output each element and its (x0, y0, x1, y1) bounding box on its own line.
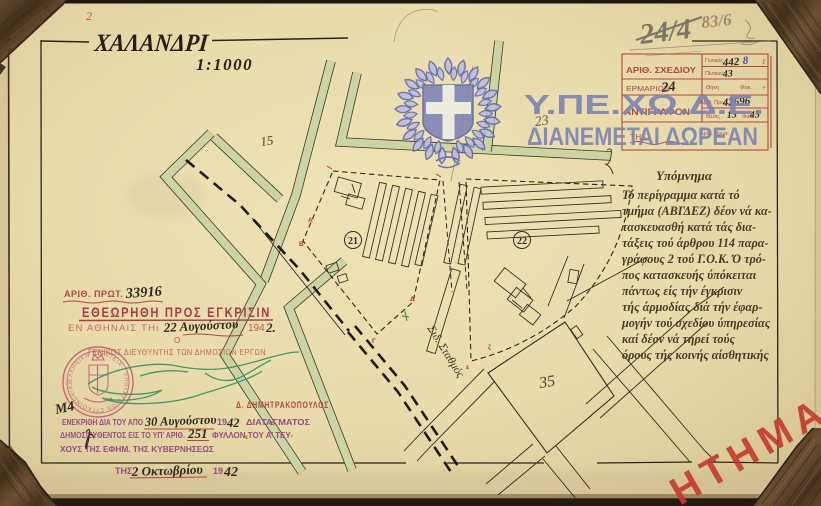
svg-text:ΧΑΛΑΝΔΡΙ: ΧΑΛΑΝΔΡΙ (92, 30, 210, 57)
svg-text:ΕΝ ΑΘΗΝΑΙΣ ΤΗι: ΕΝ ΑΘΗΝΑΙΣ ΤΗι (68, 323, 159, 334)
svg-text:251: 251 (187, 426, 208, 441)
svg-text:πος κατασκευής ύπόκειται: πος κατασκευής ύπόκειται (622, 268, 757, 282)
svg-text:194: 194 (248, 323, 265, 334)
svg-text:τής άρμοδίας διά τήν έφαρ-: τής άρμοδίας διά τήν έφαρ- (622, 300, 763, 314)
svg-text:42: 42 (223, 465, 238, 480)
svg-text:ε: ε (466, 364, 469, 371)
svg-text:πάντως είς τήν έγκρισιν: πάντως είς τήν έγκρισιν (622, 284, 743, 298)
svg-text:1:1000: 1:1000 (196, 55, 253, 74)
svg-text:19: 19 (213, 466, 223, 476)
svg-text:γράφους 2 τού Γ.Ο.Κ. Ό τρό-: γράφους 2 τού Γ.Ο.Κ. Ό τρό- (622, 252, 766, 266)
svg-text:22: 22 (517, 236, 527, 247)
svg-text:33916: 33916 (124, 283, 163, 302)
svg-text:όρους τής κοινής αίσθητικής: όρους τής κοινής αίσθητικής (622, 348, 769, 362)
svg-text:Γ: Γ (372, 338, 376, 345)
svg-text:ΔΙΑΤΑΓΜΑΤΟΣ: ΔΙΑΤΑΓΜΑΤΟΣ (246, 417, 310, 427)
svg-text:442: 442 (721, 56, 740, 69)
svg-text:Δ: Δ (410, 296, 415, 303)
svg-text:Υπόμνημα: Υπόμνημα (656, 168, 713, 183)
svg-text:1: 1 (762, 58, 766, 66)
svg-text:Ο: Ο (174, 336, 180, 345)
svg-text:τασκευασθή κατά τάς δια-: τασκευασθή κατά τάς δια- (622, 220, 756, 234)
svg-text:24/4: 24/4 (637, 13, 693, 51)
svg-text:15: 15 (259, 132, 274, 149)
svg-text:Α: Α (308, 217, 313, 224)
svg-text:ΑΡΙΘ. ΠΡΩΤ.: ΑΡΙΘ. ΠΡΩΤ. (64, 289, 123, 299)
svg-text:Γενικός: Γενικός (705, 57, 723, 64)
svg-text:2.: 2. (265, 320, 276, 335)
svg-text:19: 19 (217, 417, 227, 427)
svg-text:42: 42 (226, 416, 240, 430)
svg-text:21: 21 (348, 236, 358, 247)
svg-text:ΦΥΛΛΟΝ ΤΟΥ Α’ ΤΕΥ-: ΦΥΛΛΟΝ ΤΟΥ Α’ ΤΕΥ- (212, 430, 293, 440)
svg-text:ΤΗΣ: ΤΗΣ (115, 466, 133, 476)
svg-text:Τό περίγραμμα κατά τό: Τό περίγραμμα κατά τό (622, 188, 740, 202)
svg-text:τάξεις τού άρθρου 114 παρα-: τάξεις τού άρθρου 114 παρα- (622, 236, 769, 250)
svg-text:ΔΙΑΝΕΜΕΤΑΙ ΔΩΡΕΑΝ: ΔΙΑΝΕΜΕΤΑΙ ΔΩΡΕΑΝ (527, 123, 758, 151)
svg-text:ΕΝΕΚΡΙΘΗ ΔΙΑ ΤΟΥ ΑΠΟ: ΕΝΕΚΡΙΘΗ ΔΙΑ ΤΟΥ ΑΠΟ (62, 417, 143, 427)
svg-text:ΕΘΕΩΡΗΘΗ ΠΡΟΣ ΕΓΚΡΙΣΙΝ: ΕΘΕΩΡΗΘΗ ΠΡΟΣ ΕΓΚΡΙΣΙΝ (82, 305, 271, 320)
svg-text:μογήν τού σχεδίου ύπηρεσίας: μογήν τού σχεδίου ύπηρεσίας (621, 316, 771, 330)
svg-text:2 Οκτωβρίου: 2 Οκτωβρίου (131, 462, 204, 480)
svg-text:Πίνακες: Πίνακες (705, 71, 724, 77)
svg-text:Δ. ΔΗΜΗΤΡΑΚΟΠΟΥΛΟΣ: Δ. ΔΗΜΗΤΡΑΚΟΠΟΥΛΟΣ (236, 400, 329, 411)
svg-text:ΧΟΥΣ ΤΗΣ ΕΦΗΜ. ΤΗΣ ΚΥΒΕΡΝΗΣΕΩΣ: ΧΟΥΣ ΤΗΣ ΕΦΗΜ. ΤΗΣ ΚΥΒΕΡΝΗΣΕΩΣ (60, 444, 214, 454)
svg-text:Υ.ΠΕ.ΧΩ.Δ.Ε.: Υ.ΠΕ.ΧΩ.Δ.Ε. (524, 89, 764, 120)
svg-text:ΑΡΙΘ. ΣΧΕΔΙΟΥ: ΑΡΙΘ. ΣΧΕΔΙΟΥ (626, 65, 696, 75)
svg-text:καί δέον νά τηρεί τούς: καί δέον νά τηρεί τούς (622, 332, 735, 346)
svg-text:ζ: ζ (488, 344, 491, 351)
svg-text:τμήμα (ΑΒΓΔΕΖ) δέον νά κα-: τμήμα (ΑΒΓΔΕΖ) δέον νά κα- (622, 204, 772, 218)
svg-text:35: 35 (537, 373, 556, 392)
svg-text:43: 43 (721, 68, 733, 80)
svg-text:Β: Β (299, 241, 304, 248)
svg-text:2: 2 (86, 9, 92, 23)
svg-text:83/6: 83/6 (700, 10, 733, 32)
svg-text:ΔΗΜΟΣΙΕΥΘΕΝΤΟΣ ΕΙΣ ΤΟ ΥΠ’ ΑΡΙΘ: ΔΗΜΟΣΙΕΥΘΕΝΤΟΣ ΕΙΣ ΤΟ ΥΠ’ ΑΡΙΘ. (60, 430, 185, 440)
